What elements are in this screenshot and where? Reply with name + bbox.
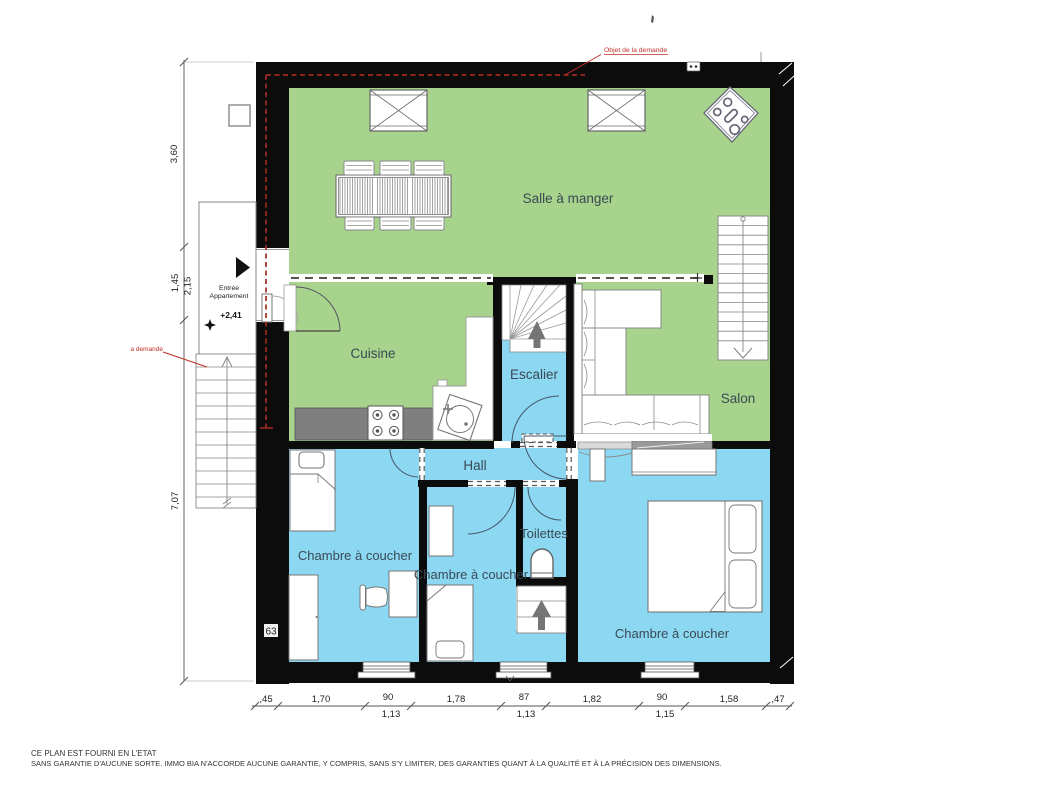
svg-text:Hall: Hall [463, 458, 486, 473]
svg-text:Entrée: Entrée [219, 285, 239, 292]
svg-text:1,82: 1,82 [583, 694, 602, 705]
svg-text:Salon: Salon [721, 391, 756, 406]
svg-text:1,45: 1,45 [170, 274, 181, 293]
svg-text:90: 90 [657, 692, 668, 703]
svg-text:Objet de la demande: Objet de la demande [604, 47, 667, 54]
svg-text:+2,41: +2,41 [220, 310, 242, 320]
svg-text:1,13: 1,13 [382, 709, 401, 720]
svg-text:,45: ,45 [259, 694, 272, 705]
svg-text:63: 63 [265, 627, 277, 638]
svg-text:Salle à manger: Salle à manger [523, 191, 614, 206]
svg-text:SANS GARANTIE D'AUCUNE SORTE.: SANS GARANTIE D'AUCUNE SORTE. IMMO BIA N… [31, 759, 722, 768]
svg-text:Escalier: Escalier [510, 367, 559, 382]
svg-text:1,70: 1,70 [312, 694, 331, 705]
svg-text:,47: ,47 [771, 694, 784, 705]
svg-text:Appartement: Appartement [210, 293, 249, 300]
svg-text:1,78: 1,78 [447, 694, 466, 705]
svg-text:3,60: 3,60 [169, 145, 180, 164]
svg-text:Chambre à coucher: Chambre à coucher [615, 626, 730, 641]
svg-text:1,58: 1,58 [720, 694, 739, 705]
svg-text:Toilettes: Toilettes [520, 526, 568, 541]
svg-text:CE PLAN EST FOURNI EN L'ETAT: CE PLAN EST FOURNI EN L'ETAT [31, 749, 157, 758]
svg-text:87: 87 [519, 692, 530, 703]
svg-text:1,15: 1,15 [656, 709, 675, 720]
svg-text:Cuisine: Cuisine [350, 346, 395, 361]
svg-text:90: 90 [383, 692, 394, 703]
svg-text:Chambre à coucher: Chambre à coucher [298, 548, 413, 563]
svg-text:2,15: 2,15 [183, 277, 194, 296]
svg-text:Chambre à coucher: Chambre à coucher [414, 567, 529, 582]
svg-text:7,07: 7,07 [170, 492, 181, 511]
svg-text:a demande: a demande [130, 346, 163, 353]
svg-text:1,13: 1,13 [517, 709, 536, 720]
